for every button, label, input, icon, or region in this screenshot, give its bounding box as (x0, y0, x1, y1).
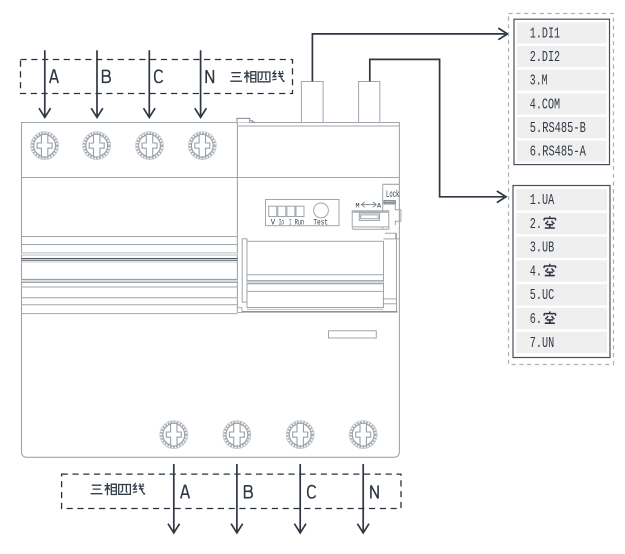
svg-text:2.: 2. (530, 217, 542, 233)
svg-text:4.COM: 4.COM (530, 97, 560, 113)
svg-text:M: M (356, 202, 360, 210)
svg-text:7.UN: 7.UN (530, 336, 554, 352)
svg-text:5.RS485-B: 5.RS485-B (530, 121, 586, 137)
svg-text:6.RS485-A: 6.RS485-A (530, 145, 586, 161)
svg-text:Run: Run (295, 218, 305, 227)
svg-text:I: I (289, 218, 291, 227)
svg-text:3.M: 3.M (530, 74, 548, 90)
svg-text:Test: Test (313, 218, 328, 227)
svg-text:Io: Io (279, 218, 284, 227)
svg-text:Lock: Lock (386, 189, 399, 201)
svg-text:1.DI1: 1.DI1 (530, 26, 560, 42)
svg-text:6.: 6. (530, 312, 542, 328)
svg-text:4.: 4. (530, 264, 542, 280)
svg-text:2.DI2: 2.DI2 (530, 50, 560, 66)
svg-text:1.UA: 1.UA (530, 193, 555, 209)
svg-text:5.UC: 5.UC (530, 288, 554, 304)
svg-text:V: V (271, 218, 276, 227)
svg-text:3.UB: 3.UB (530, 241, 555, 257)
